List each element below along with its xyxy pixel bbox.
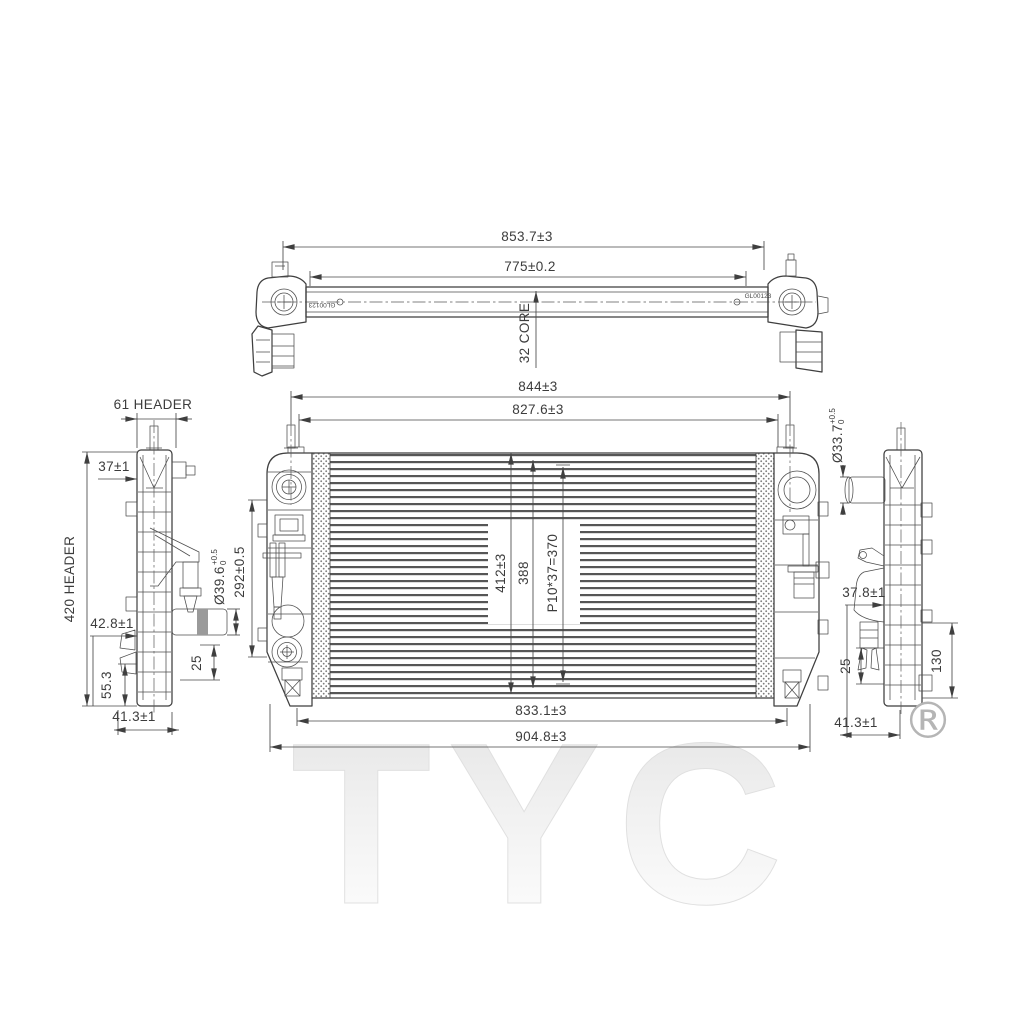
left-view-dim-header-width: 61 HEADER — [114, 397, 193, 448]
registered-trademark-icon: ® — [903, 692, 953, 750]
dim-413-right-label: 41.3±1 — [834, 715, 878, 730]
dim-37-label: 37±1 — [98, 459, 130, 474]
dim-553-label: 55.3 — [99, 671, 114, 699]
left-view-dim-top-offset: 37±1 — [98, 459, 137, 479]
top-view-left-bracket: GL00123 — [252, 262, 335, 376]
dia-337-tol-upper: +0.5 — [828, 408, 837, 424]
dim-428-label: 42.8±1 — [90, 616, 134, 631]
dim-827-label: 827.6±3 — [512, 402, 564, 417]
top-view-dim-core: 775±0.2 — [310, 259, 746, 286]
dim-378-label: 37.8±1 — [842, 585, 886, 600]
left-view-dim-header-height: 420 HEADER — [62, 452, 137, 706]
dia-396-tol-upper: +0.5 — [210, 549, 219, 565]
front-view: 844±3 827.6±3 — [232, 379, 829, 752]
front-dim-width-inner: 827.6±3 — [299, 402, 778, 447]
dia-337-label: Ø33.7 — [830, 424, 845, 463]
left-view-dim-bottom-offset: 41.3±1 — [112, 709, 179, 735]
dim-904-label: 904.8±3 — [515, 729, 567, 744]
dia-396-label: Ø39.6 — [212, 566, 227, 605]
top-view-core-bar — [262, 287, 816, 317]
front-left-tank — [258, 423, 312, 706]
part-stamp-right: GL00123 — [745, 293, 772, 300]
dim-413-left-label: 41.3±1 — [112, 709, 156, 724]
front-right-tank — [774, 423, 829, 706]
dim-130-label: 130 — [929, 649, 944, 673]
left-view-body — [120, 420, 227, 714]
left-view-dim-drain-offset: 25 — [180, 645, 220, 680]
top-view-right-bracket: GL00123 — [745, 254, 828, 372]
top-view-core-thickness: 32 CORE — [517, 291, 536, 368]
dim-61-header-label: 61 HEADER — [114, 397, 193, 412]
dim-412-label: 412±3 — [493, 553, 508, 592]
radiator-technical-drawing: TYC 853.7±3 775±0.2 — [0, 0, 1024, 1024]
dim-25-left-label: 25 — [189, 655, 204, 671]
dim-833-label: 833.1±3 — [515, 703, 567, 718]
dim-388-label: 388 — [516, 561, 531, 585]
left-view-dim-lower-offset: 55.3 — [99, 664, 137, 706]
dim-853-label: 853.7±3 — [501, 229, 553, 244]
dim-292-label: 292±0.5 — [232, 546, 247, 598]
dim-844-label: 844±3 — [518, 379, 557, 394]
dim-420-header-label: 420 HEADER — [62, 536, 77, 623]
dia-337-tol-lower: 0 — [837, 419, 846, 424]
core-thickness-label: 32 CORE — [517, 303, 532, 364]
top-view: 853.7±3 775±0.2 — [252, 229, 828, 376]
pipe-band — [197, 609, 208, 635]
right-view-body — [845, 422, 932, 714]
right-view-dim-bottom-offset: 41.3±1 — [834, 710, 900, 739]
dim-pitch-label: P10*37=370 — [545, 534, 560, 613]
part-stamp-left: GL00123 — [308, 301, 335, 308]
left-side-view: 61 HEADER — [62, 397, 240, 735]
front-dim-left-height: 292±0.5 — [232, 500, 267, 657]
right-side-view: Ø33.7 +0.5 0 37.8±1 25 130 41.3±1 — [828, 408, 958, 739]
radiator-drawing-page: TYC 853.7±3 775±0.2 — [0, 0, 1024, 1024]
dim-25-right-label: 25 — [838, 658, 853, 674]
dim-775-label: 775±0.2 — [504, 259, 556, 274]
dia-396-tol-lower: 0 — [219, 560, 228, 565]
right-view-dim-lower-height: 130 — [922, 623, 958, 698]
